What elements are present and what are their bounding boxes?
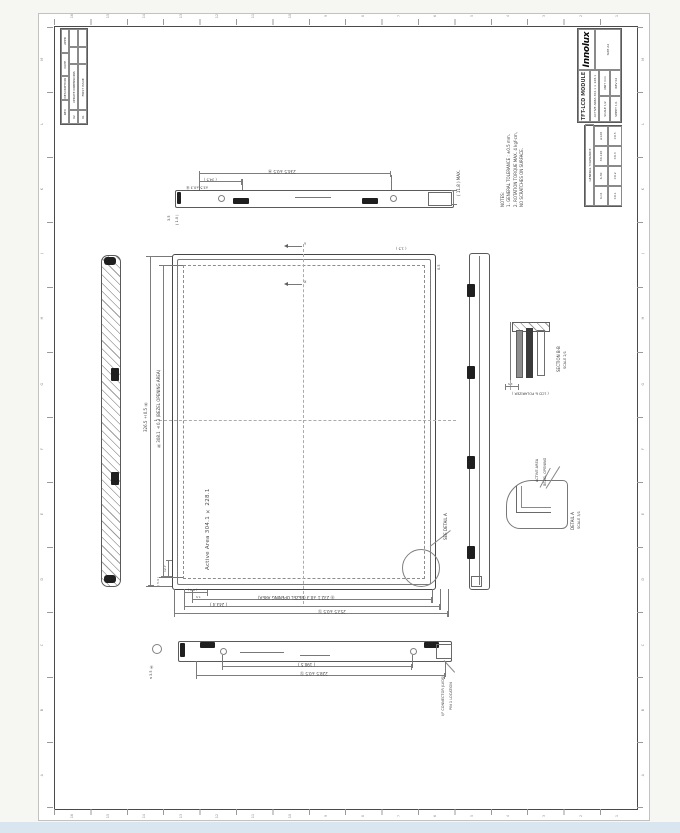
zone-label: D <box>642 578 645 580</box>
zone-label: 10 <box>289 14 292 18</box>
section-scale-label: SCALE 2/1 <box>564 333 568 369</box>
top-profile-view <box>175 190 454 208</box>
dim-bottom-s1: 7.5 <box>196 595 201 598</box>
section-plate <box>516 330 523 378</box>
dimension-line <box>184 592 208 593</box>
top-view-dim-short: ( 34.5 ) <box>204 177 217 181</box>
revision-header-cell: DESCRIPTION <box>61 77 69 101</box>
zone-label: A <box>642 774 645 776</box>
detail-a-label-active: ACTIVE AREA <box>536 436 540 482</box>
left-view-end-clip <box>104 575 116 583</box>
bottom-view-slot-line <box>300 655 330 656</box>
zone-label: 12 <box>216 814 219 818</box>
title-meta-cell: REV 02 <box>610 70 621 96</box>
extension-line <box>146 586 172 587</box>
drawing-title: TFT-LCD MODULE <box>578 70 590 122</box>
top-view-screw-hole <box>390 195 397 202</box>
zone-label: J <box>642 253 645 254</box>
revision-cell-desc: UPDATE DIMENSIONS <box>69 64 78 110</box>
extension-line <box>391 175 392 190</box>
dim-left-outer: 326.5 ±0.5 Ⓜ <box>144 372 148 432</box>
section-edge-line <box>510 322 511 380</box>
zone-label: 8 <box>362 815 365 817</box>
zone-labels-left: MLKJHGFEDCBA <box>40 26 46 808</box>
revision-header-cell: DATE <box>61 53 69 77</box>
zone-label: 9 <box>325 15 328 17</box>
dim-left-s1: 12.7 <box>164 558 167 572</box>
zone-label: 2 <box>580 815 583 817</box>
title-block-right: Innolux SIZE A2 <box>578 29 621 70</box>
zone-label: M <box>642 58 645 61</box>
zone-label: 15 <box>107 814 110 818</box>
dim-bottom-outer: 253.5 ±0.5 Ⓢ <box>318 609 346 613</box>
dimension-line <box>505 386 519 387</box>
tolerance-table: GENERAL TOLERANCE X<66-3030-120≥120 ±0.1… <box>584 125 622 207</box>
zone-label: K <box>642 188 645 190</box>
zone-label: M <box>41 58 44 61</box>
revision-row: 02 UPDATE DIMENSIONS <box>69 29 78 124</box>
zone-label: 14 <box>143 14 146 18</box>
extension-line <box>242 179 243 190</box>
datum-arrowhead <box>284 282 288 286</box>
drawing-subtitle: ACTIVE AREA 304.1 × 228.1 <box>590 70 599 122</box>
revision-row: 01 FIRST ISSUE <box>78 29 87 124</box>
bottom-view-dim-long: 228.5 ±0.5 Ⓢ <box>300 671 328 675</box>
top-view-hole-callout: ⌀3.5 ±0.3 Ⓑ <box>186 185 208 189</box>
zone-label: 1 <box>616 15 619 17</box>
zone-label: A <box>41 774 44 776</box>
section-plate-dark <box>526 328 533 378</box>
top-view-dim-s1: 3.5 <box>168 207 172 221</box>
dimension-line <box>174 613 448 614</box>
bottom-view-hole-callout: ⌀3.5 Ⓑ <box>150 654 154 680</box>
top-view-dim-long: 234.5 ±0.5 Ⓜ <box>268 169 296 173</box>
zone-label: 12 <box>216 14 219 18</box>
zone-label: K <box>41 188 44 190</box>
zone-label: 15 <box>107 14 110 18</box>
company-logo: Innolux <box>578 29 595 70</box>
zone-label: 13 <box>180 14 183 18</box>
revision-cell-date <box>69 47 78 65</box>
revision-cell-rev: 02 <box>69 110 78 124</box>
zone-label: 6 <box>434 15 437 17</box>
front-corner-dim: ( 1.5 ) <box>396 246 407 250</box>
dimension-line <box>150 256 151 586</box>
dimension-line <box>453 190 454 205</box>
title-block-left: TFT-LCD MODULE ACTIVE AREA 304.1 × 228.1… <box>578 70 621 122</box>
revision-header-cell: APPD <box>61 29 69 53</box>
zone-label: 7 <box>398 15 401 17</box>
detail-a-name-label: DETAIL A <box>571 490 575 530</box>
drawing-page: { "colors": { "background": "#f6f6f3", "… <box>0 0 680 833</box>
title-meta-cell: UNIT mm <box>599 70 610 96</box>
top-view-thickness-dim: ( 11.8 ) MAX. <box>457 162 461 196</box>
zone-label: 10 <box>289 814 292 818</box>
tolerance-range-cell: 30-120 <box>594 146 608 166</box>
zone-ticks-left <box>47 26 53 808</box>
bottom-view-slot-line <box>240 652 284 653</box>
dimension-line <box>222 666 412 667</box>
see-detail-label: SEE DETAIL A <box>444 490 448 540</box>
revision-cell-appd <box>69 29 78 47</box>
tolerance-values-row: ±0.1±0.2±0.3±0.5 <box>608 126 622 206</box>
bottom-view-leader-line2: PIN 1 LOCATION <box>450 668 454 710</box>
active-area-label: Active Area 304.1 × 228.1 <box>206 438 212 570</box>
zone-label: 11 <box>252 814 255 818</box>
revision-cell-rev: 01 <box>78 110 87 124</box>
zone-label: 4 <box>507 815 510 817</box>
zone-label: 3 <box>543 15 546 17</box>
top-view-clip <box>362 198 378 204</box>
zone-label: 16 <box>71 14 74 18</box>
left-profile-view <box>101 255 121 587</box>
top-view-dim-s2: ( 1.0 ) <box>176 207 180 225</box>
zone-label: E <box>41 513 44 515</box>
bottom-view-screw-hole <box>410 648 417 655</box>
extension-line <box>159 577 183 578</box>
zone-label: E <box>642 513 645 515</box>
zone-label: C <box>41 644 44 646</box>
section-name-label: SECTION B-B <box>557 328 561 372</box>
dimension-line <box>168 560 169 577</box>
right-view-clip <box>467 284 475 297</box>
centerline-vertical <box>303 244 304 604</box>
right-view-clip <box>467 366 475 379</box>
top-view-clip <box>233 198 249 204</box>
detail-circle-marker <box>402 549 440 587</box>
zone-label: F <box>642 448 645 450</box>
zone-label: 11 <box>252 14 255 18</box>
sheet-size: SIZE A2 <box>595 29 621 70</box>
front-edge-dim: 0.5 <box>438 258 442 270</box>
section-note: ( LCD & POLARIZER ) <box>512 391 549 395</box>
zone-label: L <box>642 123 645 125</box>
bottom-view-dim-mid: ( 190.5 ) <box>298 662 315 666</box>
tolerance-ranges-row: X<66-3030-120≥120 <box>594 126 608 206</box>
dim-bottom-s2: ( 9.0 ) <box>188 588 197 591</box>
bottom-view-end-cap <box>180 643 185 657</box>
datum-label-y: Y <box>304 243 306 247</box>
top-view-end-cap <box>177 192 181 204</box>
right-view-notch <box>471 576 482 587</box>
zone-label: 7 <box>398 815 401 817</box>
dim-left-s2: ( 5.4 ) <box>157 568 160 586</box>
dim-left-bezel: Ⓑ 308.1 ±0.3 (BEZEL OPENING AREA) <box>157 318 161 448</box>
note-line: 1. GENERAL TOLERANCE : ±0.5 mm. <box>506 125 512 207</box>
zone-label: G <box>642 383 645 385</box>
zone-label: 16 <box>71 814 74 818</box>
zone-labels-bottom: 16151413121110987654321 <box>54 813 636 819</box>
zone-label: 5 <box>471 815 474 817</box>
zone-label: H <box>642 317 645 319</box>
zone-label: L <box>41 123 44 125</box>
dim-bottom-bezel: Ⓑ 232.1 ±0.3 (BEZEL OPENING AREA) <box>258 595 335 599</box>
datum-arrow-line <box>286 246 302 247</box>
revision-table: REVDESCRIPTIONDATEAPPD 02 UPDATE DIMENSI… <box>60 28 88 125</box>
centerline-horizontal <box>154 420 456 421</box>
zone-label: 8 <box>362 15 365 17</box>
section-glass <box>537 330 545 376</box>
bottom-view-clip <box>200 642 215 648</box>
zone-ticks-top <box>54 19 636 25</box>
zone-label: 5 <box>471 15 474 17</box>
detail-a-corner-line <box>521 486 551 508</box>
top-view-connector <box>428 192 452 206</box>
datum-label-x: X <box>304 281 306 285</box>
tolerance-value-cell: ±0.1 <box>608 186 622 206</box>
zone-label: 9 <box>325 815 328 817</box>
notes-block: NOTES:1. GENERAL TOLERANCE : ±0.5 mm.2. … <box>500 125 556 207</box>
zone-label: B <box>642 709 645 711</box>
tolerance-value-cell: ±0.3 <box>608 146 622 166</box>
zone-label: C <box>642 644 645 646</box>
zone-label: B <box>41 709 44 711</box>
right-view-clip <box>467 456 475 469</box>
title-meta-cell: SHEET 1/1 <box>610 96 621 122</box>
detail-a-label-bezel: BEZEL OPENING <box>544 432 548 486</box>
tolerance-value-cell: ±0.5 <box>608 126 622 146</box>
bottom-view-screw-hole <box>220 648 227 655</box>
zone-labels-right: MLKJHGFEDCBA <box>641 26 647 808</box>
extension-line <box>440 589 441 610</box>
revision-cell-desc: FIRST ISSUE <box>78 64 87 110</box>
extension-line <box>448 589 449 617</box>
left-view-end-clip <box>104 257 116 265</box>
zone-label: 6 <box>434 815 437 817</box>
section-dim: 1.5 <box>508 382 513 385</box>
revision-cell-date <box>78 47 87 65</box>
right-view-clip <box>467 546 475 559</box>
title-meta-cell: SCALE 1/2 <box>599 96 610 122</box>
dim-bottom-mid: ( 243.4 ) <box>210 602 227 606</box>
zone-label: 14 <box>143 814 146 818</box>
zone-label: 1 <box>616 815 619 817</box>
zone-label: 13 <box>180 814 183 818</box>
left-view-clip <box>111 472 119 485</box>
datum-arrow-line <box>286 284 302 285</box>
tolerance-range-cell: X<6 <box>594 186 608 206</box>
datum-arrowhead <box>284 244 288 248</box>
zone-label: 4 <box>507 15 510 17</box>
zone-labels-top: 16151413121110987654321 <box>54 13 636 19</box>
zone-label: J <box>41 253 44 254</box>
note-line: NO SCRATCHES ON SURFACE. <box>519 125 525 207</box>
tolerance-range-cell: 6-30 <box>594 166 608 186</box>
front-view-active-area <box>183 265 425 579</box>
right-view-inner-line <box>479 256 480 585</box>
title-block: TFT-LCD MODULE ACTIVE AREA 304.1 × 228.1… <box>577 28 622 123</box>
bottom-view-connector <box>436 644 452 659</box>
detail-a-scale-label: SCALE 3/1 <box>578 493 582 529</box>
tolerance-range-cell: ≥120 <box>594 126 608 146</box>
revision-table-header-row: REVDESCRIPTIONDATEAPPD <box>61 29 69 124</box>
top-view-slot-line <box>295 197 331 198</box>
left-view-clip <box>111 368 119 381</box>
extension-line <box>445 661 446 677</box>
tolerance-value-cell: ±0.2 <box>608 166 622 186</box>
zone-label: 2 <box>580 15 583 17</box>
viewer-footer-bar <box>0 822 680 833</box>
dimension-line <box>163 265 164 577</box>
tolerance-table-title: GENERAL TOLERANCE <box>585 124 594 206</box>
revision-header-cell: REV <box>61 100 69 124</box>
zone-label: D <box>41 578 44 580</box>
revision-cell-appd <box>78 29 87 47</box>
zone-label: G <box>41 383 44 385</box>
bottom-view-hole-callout-balloon <box>152 644 162 654</box>
revision-table-body: 02 UPDATE DIMENSIONS 01 FIRST ISSUE <box>69 29 87 124</box>
zone-label: 3 <box>543 815 546 817</box>
top-view-screw-hole <box>218 195 225 202</box>
title-block-meta: SCALE 1/2UNIT mmSHEET 1/1REV 02 <box>599 70 621 122</box>
extension-line <box>432 589 433 603</box>
zone-label: F <box>41 448 44 450</box>
zone-label: H <box>41 317 44 319</box>
extension-line <box>412 655 413 668</box>
